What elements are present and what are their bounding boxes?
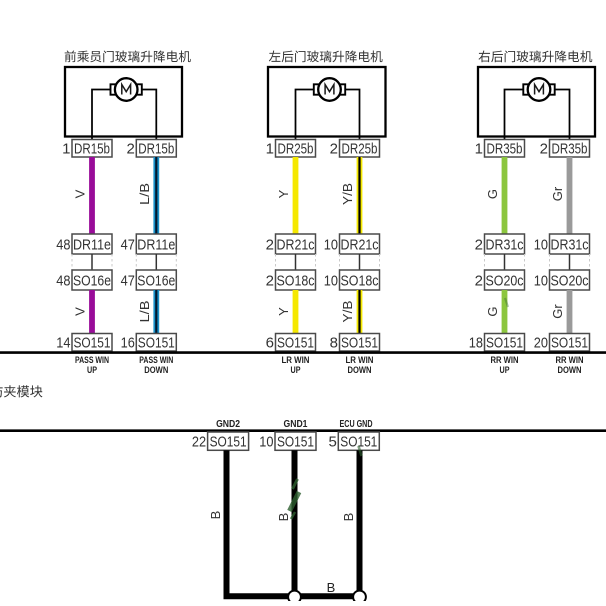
svg-text:B: B <box>327 580 336 595</box>
svg-text:1: 1 <box>475 141 483 158</box>
svg-text:SO16e: SO16e <box>137 272 175 289</box>
svg-text:LR WIN: LR WIN <box>346 355 374 365</box>
svg-text:DR11e: DR11e <box>73 236 111 253</box>
svg-text:LR WIN: LR WIN <box>282 355 310 365</box>
svg-text:DR21c: DR21c <box>341 236 379 253</box>
svg-text:2: 2 <box>540 141 548 158</box>
svg-text:DOWN: DOWN <box>558 365 582 375</box>
svg-text:PASS WIN: PASS WIN <box>75 355 109 365</box>
svg-text:Y/B: Y/B <box>340 301 355 323</box>
svg-text:14: 14 <box>56 335 70 352</box>
svg-text:DR35b: DR35b <box>552 141 588 158</box>
svg-text:10: 10 <box>324 273 338 290</box>
svg-text:SO18c: SO18c <box>277 272 315 289</box>
svg-text:10: 10 <box>534 273 548 290</box>
svg-text:B: B <box>341 513 356 522</box>
svg-text:DR21c: DR21c <box>277 236 315 253</box>
svg-text:DR15b: DR15b <box>74 141 110 158</box>
svg-text:18: 18 <box>469 335 483 352</box>
svg-text:6: 6 <box>266 335 274 352</box>
svg-text:GND1: GND1 <box>284 419 308 430</box>
svg-text:L/B: L/B <box>137 183 152 205</box>
svg-text:SO18c: SO18c <box>341 272 379 289</box>
svg-text:48: 48 <box>56 237 70 254</box>
svg-text:RR WIN: RR WIN <box>491 355 519 365</box>
svg-text:22: 22 <box>192 434 206 451</box>
svg-text:10: 10 <box>324 237 338 254</box>
svg-text:L/B: L/B <box>137 301 152 323</box>
svg-text:DR31c: DR31c <box>551 236 589 253</box>
svg-text:G: G <box>485 189 500 199</box>
svg-text:V: V <box>73 307 88 316</box>
svg-text:2: 2 <box>266 273 274 290</box>
svg-text:SO151: SO151 <box>551 335 588 352</box>
svg-text:1: 1 <box>62 141 70 158</box>
svg-text:Y: Y <box>276 307 291 316</box>
svg-text:DR31c: DR31c <box>486 236 524 253</box>
svg-text:SO151: SO151 <box>341 335 378 352</box>
svg-text:RR WIN: RR WIN <box>556 355 584 365</box>
svg-text:SO20c: SO20c <box>551 272 589 289</box>
svg-text:10: 10 <box>534 237 548 254</box>
svg-text:GND2: GND2 <box>216 419 240 430</box>
svg-text:47: 47 <box>121 273 135 290</box>
svg-text:1: 1 <box>266 141 274 158</box>
svg-text:8: 8 <box>330 335 338 352</box>
svg-text:Y: Y <box>276 189 291 198</box>
svg-text:SO20c: SO20c <box>486 272 524 289</box>
svg-text:DR25b: DR25b <box>342 141 378 158</box>
svg-text:V: V <box>73 189 88 198</box>
svg-text:5: 5 <box>328 434 336 451</box>
svg-text:2: 2 <box>330 141 338 158</box>
svg-text:UP: UP <box>291 365 301 375</box>
svg-text:SO151: SO151 <box>138 335 175 352</box>
svg-text:16: 16 <box>121 335 135 352</box>
svg-text:2: 2 <box>126 141 134 158</box>
svg-text:DR35b: DR35b <box>487 141 523 158</box>
svg-text:47: 47 <box>121 237 135 254</box>
svg-text:SO151: SO151 <box>277 335 314 352</box>
svg-text:10: 10 <box>259 434 273 451</box>
svg-text:DR11e: DR11e <box>137 236 175 253</box>
svg-text:B: B <box>208 511 223 520</box>
svg-text:DOWN: DOWN <box>144 365 168 375</box>
svg-text:SO151: SO151 <box>277 433 314 450</box>
svg-text:UP: UP <box>87 365 97 375</box>
svg-text:2: 2 <box>475 273 483 290</box>
svg-text:48: 48 <box>56 273 70 290</box>
svg-text:2: 2 <box>266 237 274 254</box>
svg-text:SO151: SO151 <box>210 433 247 450</box>
svg-text:SO151: SO151 <box>74 335 111 352</box>
svg-text:DR15b: DR15b <box>138 141 174 158</box>
svg-text:20: 20 <box>534 335 548 352</box>
svg-text:DOWN: DOWN <box>348 365 372 375</box>
svg-text:G: G <box>485 306 500 316</box>
svg-text:2: 2 <box>475 237 483 254</box>
svg-text:DR25b: DR25b <box>278 141 314 158</box>
svg-text:ECU GND: ECU GND <box>340 419 373 430</box>
svg-text:Gr: Gr <box>550 304 565 319</box>
svg-text:B: B <box>276 513 291 522</box>
svg-text:Y/B: Y/B <box>340 183 355 205</box>
svg-text:PASS WIN: PASS WIN <box>139 355 173 365</box>
svg-text:SO16e: SO16e <box>73 272 111 289</box>
svg-text:Gr: Gr <box>550 186 565 201</box>
svg-text:UP: UP <box>500 365 510 375</box>
svg-text:SO151: SO151 <box>486 335 523 352</box>
